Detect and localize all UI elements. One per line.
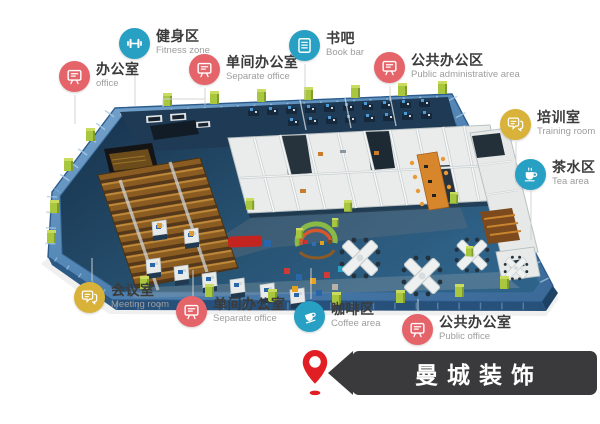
callout-title: 单间办公室 [226,55,299,71]
callout-office: 办公室office [59,61,140,92]
fitness-badge [119,28,150,59]
callout-title: 会议室 [111,283,169,299]
tea-badge [515,159,546,190]
callout-training: 培训室Training room [500,109,595,140]
callout-subtitle: Separate office [213,314,286,325]
callout-subtitle: Book bar [326,48,364,59]
callout-title: 公共办公室 [439,315,512,331]
book-icon [295,36,314,55]
callout-book-bar: 书吧Book bar [289,30,364,61]
separate-office-badge [189,54,220,85]
callout-title: 办公室 [96,62,140,78]
location-pin-icon [302,349,328,397]
callout-meeting: 会议室Meeting room [74,282,169,313]
infographic-canvas: 办公室office 健身区Fitness zone 单间办公室Separate … [0,0,600,424]
callout-public-office: 公共办公室Public office [402,314,512,345]
training-badge [500,109,531,140]
red-sofa [228,235,262,247]
callout-title: 书吧 [326,31,364,47]
callout-separate-office-bottom: 单间办公室Separate office [176,296,286,327]
callout-coffee: 咖啡区Coffee area [294,301,380,332]
brand-name: 曼城装饰 [406,356,543,390]
chat-bubbles-icon [80,288,99,307]
monitor-icon [380,58,399,77]
callout-title: 公共办公区 [411,53,520,69]
public-office-badge [402,314,433,345]
callout-subtitle: Tea area [552,177,596,188]
monitor-icon [182,302,201,321]
brand-banner: 曼城装饰 [352,351,597,395]
office-badge [59,61,90,92]
meeting-badge [74,282,105,313]
callout-subtitle: Training room [537,127,595,138]
monitor-icon [65,67,84,86]
callout-subtitle: Public administrative area [411,70,520,81]
public-admin-badge [374,52,405,83]
callout-title: 健身区 [156,29,210,45]
coffee-badge [294,301,325,332]
callout-title: 单间办公室 [213,297,286,313]
callout-public-admin: 公共办公区Public administrative area [374,52,520,83]
callout-subtitle: Public office [439,332,512,343]
dumbbell-icon [125,34,144,53]
callout-subtitle: office [96,79,140,90]
callout-tea: 茶水区Tea area [515,159,596,190]
callout-subtitle: Coffee area [331,319,380,330]
banner-arrow [328,351,353,395]
coffee-cup-icon [300,307,319,326]
monitor-icon [195,60,214,79]
callout-subtitle: Separate office [226,72,299,83]
book-bar-badge [289,30,320,61]
callout-title: 培训室 [537,110,595,126]
separate-office-badge [176,296,207,327]
callout-subtitle: Meeting room [111,300,169,311]
teacup-icon [521,165,540,184]
callout-separate-office-top: 单间办公室Separate office [189,54,299,85]
callout-title: 茶水区 [552,160,596,176]
chat-bubbles-icon [506,115,525,134]
callout-title: 咖啡区 [331,302,380,318]
monitor-icon [408,320,427,339]
central-rooms [228,125,507,218]
